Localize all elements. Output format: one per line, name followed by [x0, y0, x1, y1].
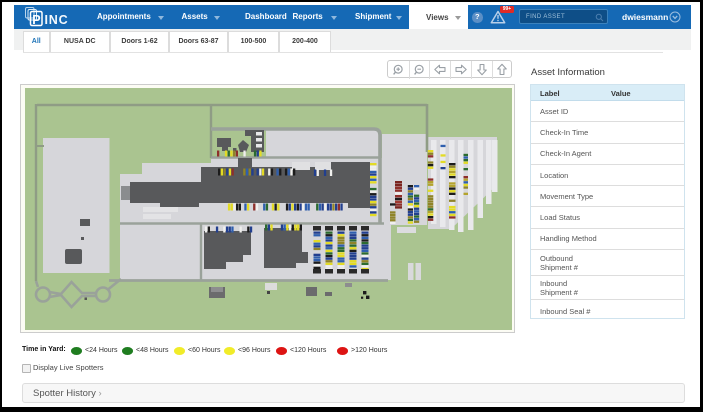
svg-text:P: P — [32, 13, 40, 27]
svg-text:INC: INC — [45, 13, 69, 27]
